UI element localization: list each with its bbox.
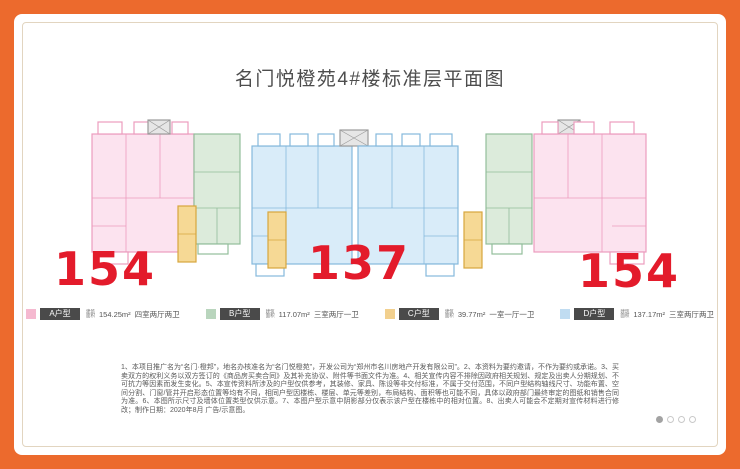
legend-color-chip-a: [26, 309, 36, 319]
building-right-wing: [486, 120, 646, 264]
legend: A户型 建筑面积 154.25m² 四室两厅两卫 B户型 建筑面积 117.07…: [14, 308, 726, 320]
legend-color-chip-b: [206, 309, 216, 319]
legend-area-value-b: 117.07m²: [279, 310, 310, 319]
legend-item-c: C户型 建筑面积 39.77m² 一室一厅一卫: [385, 308, 535, 320]
legend-color-chip-c: [385, 309, 395, 319]
pagination-dot-3[interactable]: [678, 416, 685, 423]
legend-area-prefix-c: 建筑面积: [445, 310, 454, 319]
unit-area-number-middle: 137: [304, 240, 414, 286]
legend-area-prefix-d: 建筑面积: [620, 310, 629, 319]
legend-area-value-a: 154.25m²: [99, 310, 131, 319]
legend-item-d: D户型 建筑面积 137.17m² 三室两厅两卫: [560, 308, 714, 320]
legend-area-prefix-a: 建筑面积: [86, 310, 95, 319]
pagination-dot-1[interactable]: [656, 416, 663, 423]
page-card: 名门悦橙苑4#楼标准层平面图: [14, 14, 726, 455]
legend-rooms-d: 三室两厅两卫: [669, 309, 714, 320]
pagination-dot-4[interactable]: [689, 416, 696, 423]
legend-color-chip-d: [560, 309, 570, 319]
legend-item-b: B户型 建筑面积 117.07m² 三室两厅一卫: [206, 308, 359, 320]
unit-area-number-left: 154: [50, 246, 160, 292]
legend-badge-c: C户型: [399, 308, 439, 320]
legend-area-prefix-b: 建筑面积: [266, 310, 275, 319]
legend-badge-a: A户型: [40, 308, 80, 320]
legend-area-value-c: 39.77m²: [458, 310, 486, 319]
unit-area-number-right: 154: [574, 248, 684, 294]
legend-badge-d: D户型: [574, 308, 614, 320]
legend-rooms-c: 一室一厅一卫: [489, 309, 534, 320]
legend-area-value-d: 137.17m²: [633, 310, 665, 319]
pagination-dots: [656, 416, 696, 423]
legend-badge-b: B户型: [220, 308, 260, 320]
legend-rooms-b: 三室两厅一卫: [314, 309, 359, 320]
legend-rooms-a: 四室两厅两卫: [135, 309, 180, 320]
legend-item-a: A户型 建筑面积 154.25m² 四室两厅两卫: [26, 308, 180, 320]
disclaimer-text: 1、本项目推广名为“名门·橙邦”，地名办核准名为“名门悦橙苑”，开发公司为“郑州…: [121, 364, 619, 416]
pagination-dot-2[interactable]: [667, 416, 674, 423]
page-title: 名门悦橙苑4#楼标准层平面图: [14, 64, 726, 91]
